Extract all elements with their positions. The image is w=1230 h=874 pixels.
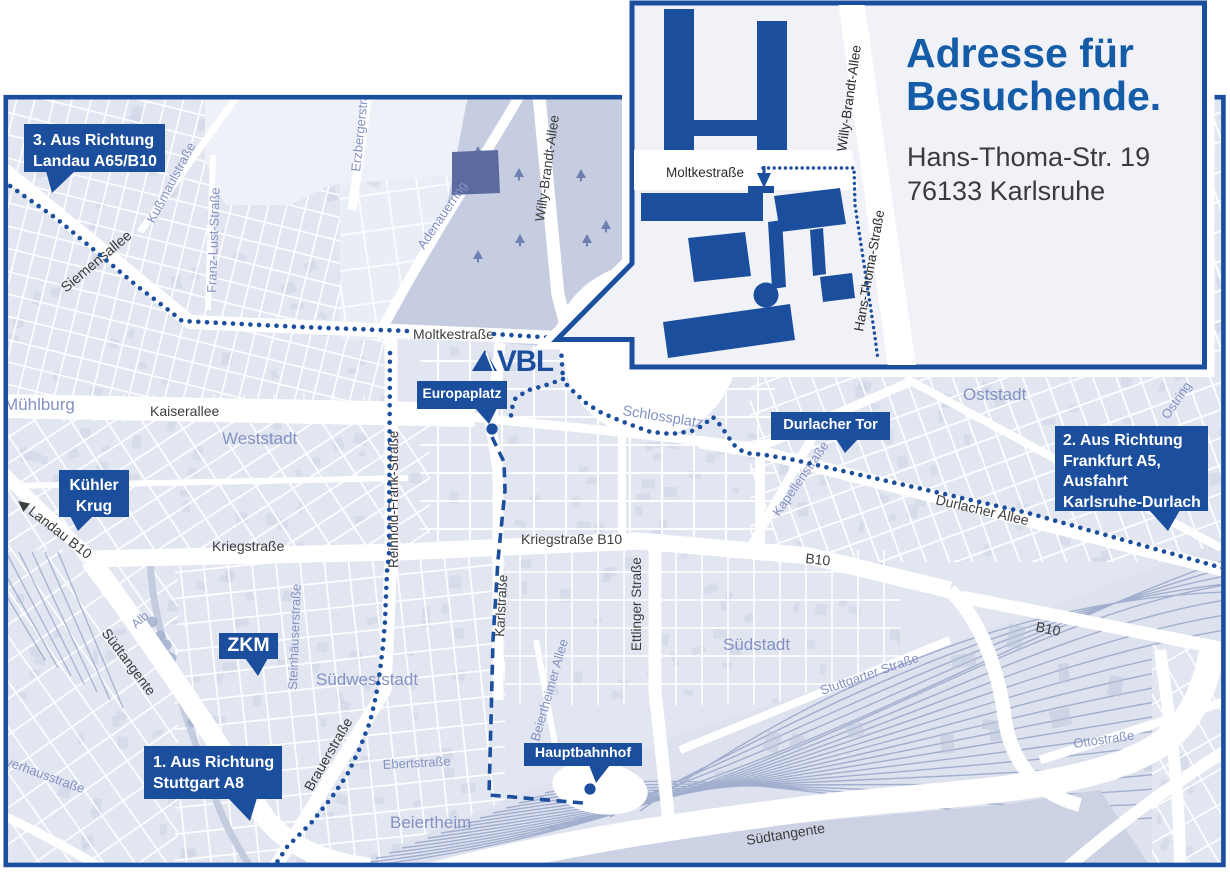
svg-text:Mühlburg: Mühlburg: [4, 395, 75, 414]
svg-text:Oststadt: Oststadt: [963, 385, 1027, 404]
svg-text:Kriegstraße: Kriegstraße: [212, 538, 285, 554]
svg-text:2. Aus Richtung: 2. Aus Richtung: [1063, 432, 1183, 449]
svg-text:Stuttgart A8: Stuttgart A8: [153, 775, 244, 792]
svg-text:Kaiserallee: Kaiserallee: [150, 403, 219, 419]
svg-text:Europaplatz: Europaplatz: [423, 386, 502, 401]
svg-text:Hauptbahnhof: Hauptbahnhof: [535, 745, 631, 761]
svg-text:Ettlinger Straße: Ettlinger Straße: [629, 557, 644, 651]
svg-text:Kriegstraße B10: Kriegstraße B10: [521, 531, 622, 547]
svg-text:Besuchende.: Besuchende.: [906, 73, 1161, 119]
svg-text:VBL: VBL: [497, 345, 554, 378]
svg-text:Hans-Thoma-Str. 19: Hans-Thoma-Str. 19: [907, 142, 1150, 172]
svg-text:Landau A65/B10: Landau A65/B10: [33, 153, 157, 170]
svg-text:Frankfurt A5,: Frankfurt A5,: [1063, 453, 1161, 470]
svg-text:Adresse für: Adresse für: [906, 30, 1134, 76]
svg-text:B10: B10: [805, 550, 832, 569]
svg-text:3. Aus Richtung: 3. Aus Richtung: [33, 132, 154, 149]
svg-text:Karlsruhe-Durlach: Karlsruhe-Durlach: [1063, 494, 1201, 511]
svg-text:1. Aus Richtung: 1. Aus Richtung: [153, 754, 274, 771]
svg-text:Weststadt: Weststadt: [222, 429, 298, 448]
svg-text:Südstadt: Südstadt: [723, 635, 790, 654]
svg-text:Durlacher Tor: Durlacher Tor: [783, 417, 878, 433]
svg-text:Südweststadt: Südweststadt: [316, 670, 418, 689]
svg-text:Ausfahrt: Ausfahrt: [1063, 473, 1129, 490]
svg-text:Moltkestraße: Moltkestraße: [666, 165, 744, 180]
svg-text:Krug: Krug: [76, 498, 112, 515]
svg-text:76133 Karlsruhe: 76133 Karlsruhe: [907, 176, 1105, 206]
svg-text:Moltkestraße: Moltkestraße: [413, 326, 494, 342]
svg-text:Beiertheim: Beiertheim: [390, 813, 471, 832]
svg-text:ZKM: ZKM: [227, 634, 269, 656]
svg-text:Kühler: Kühler: [69, 477, 118, 494]
